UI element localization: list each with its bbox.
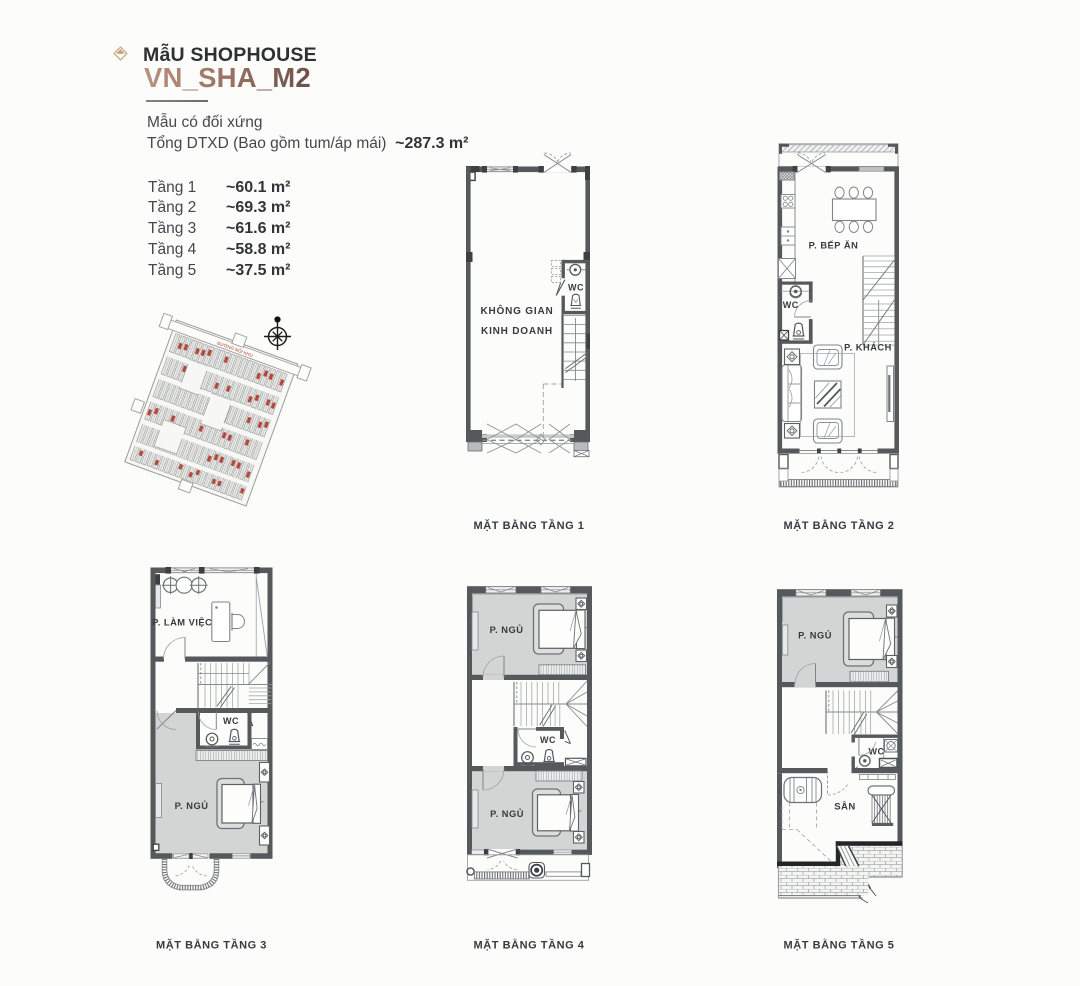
svg-text:WC: WC bbox=[568, 283, 584, 293]
svg-text:KINH DOANH: KINH DOANH bbox=[481, 326, 553, 337]
svg-text:MẶT BẰNG TẦNG 1: MẶT BẰNG TẦNG 1 bbox=[474, 519, 585, 532]
svg-text:WC: WC bbox=[783, 300, 799, 310]
svg-text:SÂN: SÂN bbox=[834, 801, 856, 813]
svg-text:P. LÀM VIỆC: P. LÀM VIỆC bbox=[152, 617, 212, 628]
svg-text:P. NGỦ: P. NGỦ bbox=[798, 630, 832, 641]
svg-text:MẶT BẰNG TẦNG 3: MẶT BẰNG TẦNG 3 bbox=[156, 939, 267, 952]
svg-text:WC: WC bbox=[540, 735, 556, 745]
svg-text:MẶT BẰNG TẦNG 4: MẶT BẰNG TẦNG 4 bbox=[474, 939, 585, 952]
svg-text:MẶT BẰNG TẦNG 5: MẶT BẰNG TẦNG 5 bbox=[784, 939, 895, 952]
svg-text:KHÔNG GIAN: KHÔNG GIAN bbox=[481, 304, 554, 317]
svg-text:WC: WC bbox=[223, 716, 239, 726]
svg-text:WC: WC bbox=[869, 747, 885, 757]
svg-text:P. NGỦ: P. NGỦ bbox=[175, 800, 209, 811]
svg-text:P. NGỦ: P. NGỦ bbox=[490, 624, 524, 635]
svg-text:P. BẾP ĂN: P. BẾP ĂN bbox=[809, 241, 859, 251]
svg-text:P. KHÁCH: P. KHÁCH bbox=[844, 343, 892, 353]
svg-text:P. NGỦ: P. NGỦ bbox=[490, 808, 524, 819]
svg-text:MẶT BẰNG TẦNG 2: MẶT BẰNG TẦNG 2 bbox=[784, 519, 895, 532]
